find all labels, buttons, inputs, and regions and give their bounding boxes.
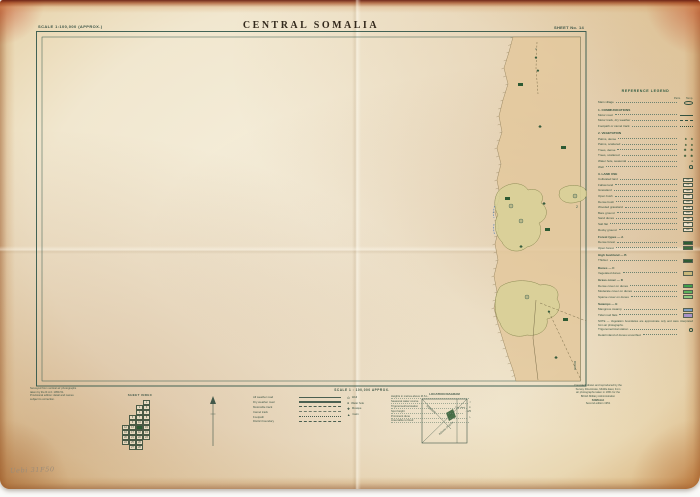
hachure-tick — [496, 156, 499, 157]
well-dot — [511, 206, 512, 207]
palm2-icon: ♠♠ — [679, 137, 693, 141]
imprint-note: Compiled, drawn and reproduced by theSur… — [548, 384, 648, 406]
settlement-icon — [545, 228, 550, 231]
sheet-index-title: SHEET INDEX — [104, 393, 176, 397]
map-title: CENTRAL SOMALIA — [226, 20, 396, 31]
line-sample-dashdot — [299, 411, 341, 412]
legend-heading: REFERENCE LEGEND — [598, 89, 693, 93]
legend-item: Tidal mud flats — [598, 313, 693, 319]
location-diagram-title: LOCATION DIAGRAM — [408, 392, 481, 396]
settlement-icon — [561, 146, 566, 149]
hachure-tick — [497, 116, 500, 117]
palm2-icon: ♠♠ — [679, 143, 693, 147]
sign-glyph: ▲ — [347, 413, 350, 417]
tree-icon: ♠ — [535, 55, 538, 61]
scale-label: SCALE 1:100,000 (APPROX.) — [38, 24, 102, 29]
sign-glyph: ● — [347, 401, 349, 405]
hachure-tick — [492, 308, 495, 309]
note-row: Prominent dune∿ — [391, 414, 471, 419]
settlement-icon — [518, 83, 523, 86]
settlement-icon — [563, 318, 568, 321]
sheet-index-grid: 1234567891011121314151617181920212223242… — [122, 400, 158, 450]
swatch-icon — [679, 295, 693, 299]
line-icon — [679, 115, 693, 116]
hachure-tick — [493, 316, 496, 317]
legend-item: Detail inland of dunes unverified — [598, 333, 693, 339]
sheet-number: SHEET No. 14 — [554, 25, 584, 30]
hachure-tick — [501, 340, 504, 341]
legend-item: Vegetated dunes — [598, 271, 693, 277]
sign-glyph: ⊙ — [347, 396, 350, 400]
code-icon: WG — [679, 206, 693, 210]
legend-item: Open forest — [598, 245, 693, 251]
hachure-tick — [498, 332, 501, 333]
sheet-index-cell: 28 — [136, 445, 143, 450]
well-dot — [521, 221, 522, 222]
settlement-icon — [505, 197, 510, 200]
hachure-tick — [495, 148, 498, 149]
line-sample-double — [299, 401, 341, 403]
hachure-tick — [498, 124, 501, 125]
note-row: Area liable to flood — [391, 419, 471, 424]
well-dot — [527, 297, 528, 298]
legend-item: Main village — [598, 100, 693, 106]
hachure-tick — [492, 276, 495, 277]
imprint-line: Second edition 1951 — [548, 402, 648, 406]
tree2-icon: ♣♣ — [679, 154, 693, 158]
hachure-tick — [506, 356, 509, 357]
tree2-icon: ♣♣ — [679, 148, 693, 152]
tree-icon: ♠ — [548, 309, 551, 315]
swatch-icon — [679, 284, 693, 288]
code-icon: GR — [679, 189, 693, 193]
line-sample-dash — [299, 406, 341, 407]
swatch-icon — [679, 271, 693, 275]
tree-icon: ♠ — [537, 68, 540, 74]
legend-item: Rocky groundRK — [598, 227, 693, 233]
legend-item: Sparse cover on dunes — [598, 294, 693, 300]
dots-icon — [679, 126, 693, 127]
code-icon: SD — [679, 217, 693, 221]
road-sign-row: District boundary — [253, 419, 341, 424]
hachure-tick — [508, 363, 511, 364]
swatch-icon — [679, 290, 693, 294]
swatch-icon — [679, 246, 693, 250]
hachure-tick — [512, 376, 515, 377]
swatch-icon — [679, 259, 693, 263]
vegetation-area — [559, 185, 587, 203]
well-dot — [575, 196, 576, 197]
hachure-tick — [493, 284, 496, 285]
code-icon: FL — [679, 183, 693, 187]
legend-note: NOTE — Vegetation boundaries are approxi… — [598, 320, 693, 327]
code-icon: CL — [679, 178, 693, 182]
hachure-tick — [511, 370, 514, 371]
code-icon: RK — [679, 228, 693, 232]
hachure-tick — [496, 188, 499, 189]
legend-item: Footpath or camel track — [598, 124, 693, 130]
scanned-map-sheet: ♠♠♣♣♣♣♠21 SCALE 1:100,000 (APPROX.) CENT… — [0, 0, 700, 497]
code-icon: SF — [679, 222, 693, 226]
line-sample-dash — [299, 421, 341, 422]
swatch-icon — [679, 241, 693, 245]
hachure-tick — [496, 324, 499, 325]
handwritten-note: Uebi 31F50 — [10, 465, 55, 475]
sheet-index-cell: 23 — [143, 435, 150, 440]
line-sample-solid — [299, 397, 341, 398]
hachure-tick — [503, 76, 506, 77]
hachure-tick — [503, 348, 506, 349]
location-label-this-sheet: This sheet — [455, 407, 465, 409]
north-arrow-head — [210, 396, 216, 404]
stream-icon — [494, 206, 495, 234]
legend-item: Well — [598, 164, 693, 170]
hachure-tick — [495, 180, 498, 181]
code-icon: DB — [679, 200, 693, 204]
oval-icon — [679, 101, 693, 105]
code-icon: OB — [679, 194, 693, 198]
note-row: Seasonal water course≈ — [391, 400, 471, 405]
circledot-icon — [679, 165, 693, 169]
dot-icon: ● — [679, 160, 693, 163]
cairn-dot — [574, 361, 575, 362]
dash-icon — [679, 120, 693, 121]
swatch-icon — [679, 308, 693, 312]
sheet-index-cell: 24 — [122, 440, 129, 445]
circledot-icon — [679, 328, 693, 332]
map-label: 2 — [576, 205, 578, 209]
sign-glyph: ✚ — [347, 407, 350, 411]
point-signs-column: ⊙Well●Water hole✚Mosque▲Cairn — [347, 395, 383, 424]
road-signs-column: All weather roadDry weather roadMotorabl… — [253, 395, 341, 424]
legend-item: Thicket — [598, 258, 693, 264]
hachure-tick — [494, 252, 497, 253]
sheet-index-cell: 27 — [129, 445, 136, 450]
code-icon: BG — [679, 211, 693, 215]
sheet-index: SHEET INDEX 1234567891011121314151617181… — [104, 393, 176, 450]
hachure-tick — [502, 68, 505, 69]
line-sample-dots — [299, 416, 341, 417]
legend-panel: REFERENCE LEGENDPerm.Temp.Main village1.… — [598, 89, 693, 338]
point-sign-row: ▲Cairn — [347, 412, 383, 418]
swatch-icon — [679, 313, 693, 317]
hachure-tick — [493, 244, 496, 245]
